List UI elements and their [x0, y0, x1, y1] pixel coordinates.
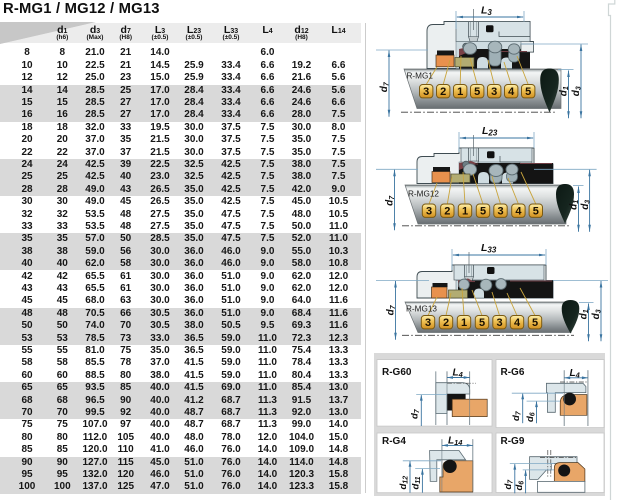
- svg-text:d1: d1: [579, 309, 591, 319]
- svg-text:3: 3: [425, 317, 431, 329]
- svg-text:L4: L4: [453, 368, 464, 380]
- svg-text:R-G60: R-G60: [382, 367, 412, 378]
- svg-text:3: 3: [423, 86, 429, 98]
- svg-text:5: 5: [525, 86, 531, 98]
- svg-text:R-MG13: R-MG13: [406, 305, 437, 314]
- svg-text:L4: L4: [570, 368, 581, 380]
- svg-text:R-G6: R-G6: [501, 367, 525, 378]
- svg-text:5: 5: [532, 317, 538, 329]
- svg-text:2: 2: [443, 317, 449, 329]
- svg-text:L3: L3: [481, 5, 492, 18]
- svg-text:R-MG1: R-MG1: [407, 72, 434, 81]
- svg-text:5: 5: [480, 206, 486, 218]
- svg-text:2: 2: [444, 206, 450, 218]
- svg-text:d7: d7: [385, 195, 397, 206]
- svg-text:d7: d7: [379, 81, 391, 92]
- svg-text:d7: d7: [386, 304, 398, 315]
- svg-text:R-G9: R-G9: [501, 436, 525, 447]
- svg-text:1: 1: [462, 206, 468, 218]
- svg-text:4: 4: [508, 86, 515, 98]
- svg-text:5: 5: [533, 206, 539, 218]
- svg-text:5: 5: [479, 317, 485, 329]
- svg-text:1: 1: [457, 86, 463, 98]
- svg-text:2: 2: [440, 86, 446, 98]
- svg-text:L14: L14: [448, 435, 463, 447]
- svg-text:4: 4: [514, 317, 521, 329]
- svg-text:L33: L33: [481, 242, 497, 255]
- svg-text:R-G4: R-G4: [382, 436, 406, 447]
- svg-text:L23: L23: [482, 125, 498, 138]
- svg-text:1: 1: [461, 317, 467, 329]
- svg-text:5: 5: [474, 86, 480, 98]
- svg-text:d3: d3: [571, 86, 583, 96]
- svg-text:R-MG12: R-MG12: [408, 190, 439, 199]
- svg-text:d3: d3: [580, 200, 592, 210]
- svg-text:3: 3: [491, 86, 497, 98]
- svg-text:3: 3: [496, 317, 502, 329]
- svg-text:d3: d3: [591, 309, 603, 319]
- svg-text:4: 4: [515, 206, 522, 218]
- svg-text:3: 3: [497, 206, 503, 218]
- svg-text:3: 3: [426, 206, 432, 218]
